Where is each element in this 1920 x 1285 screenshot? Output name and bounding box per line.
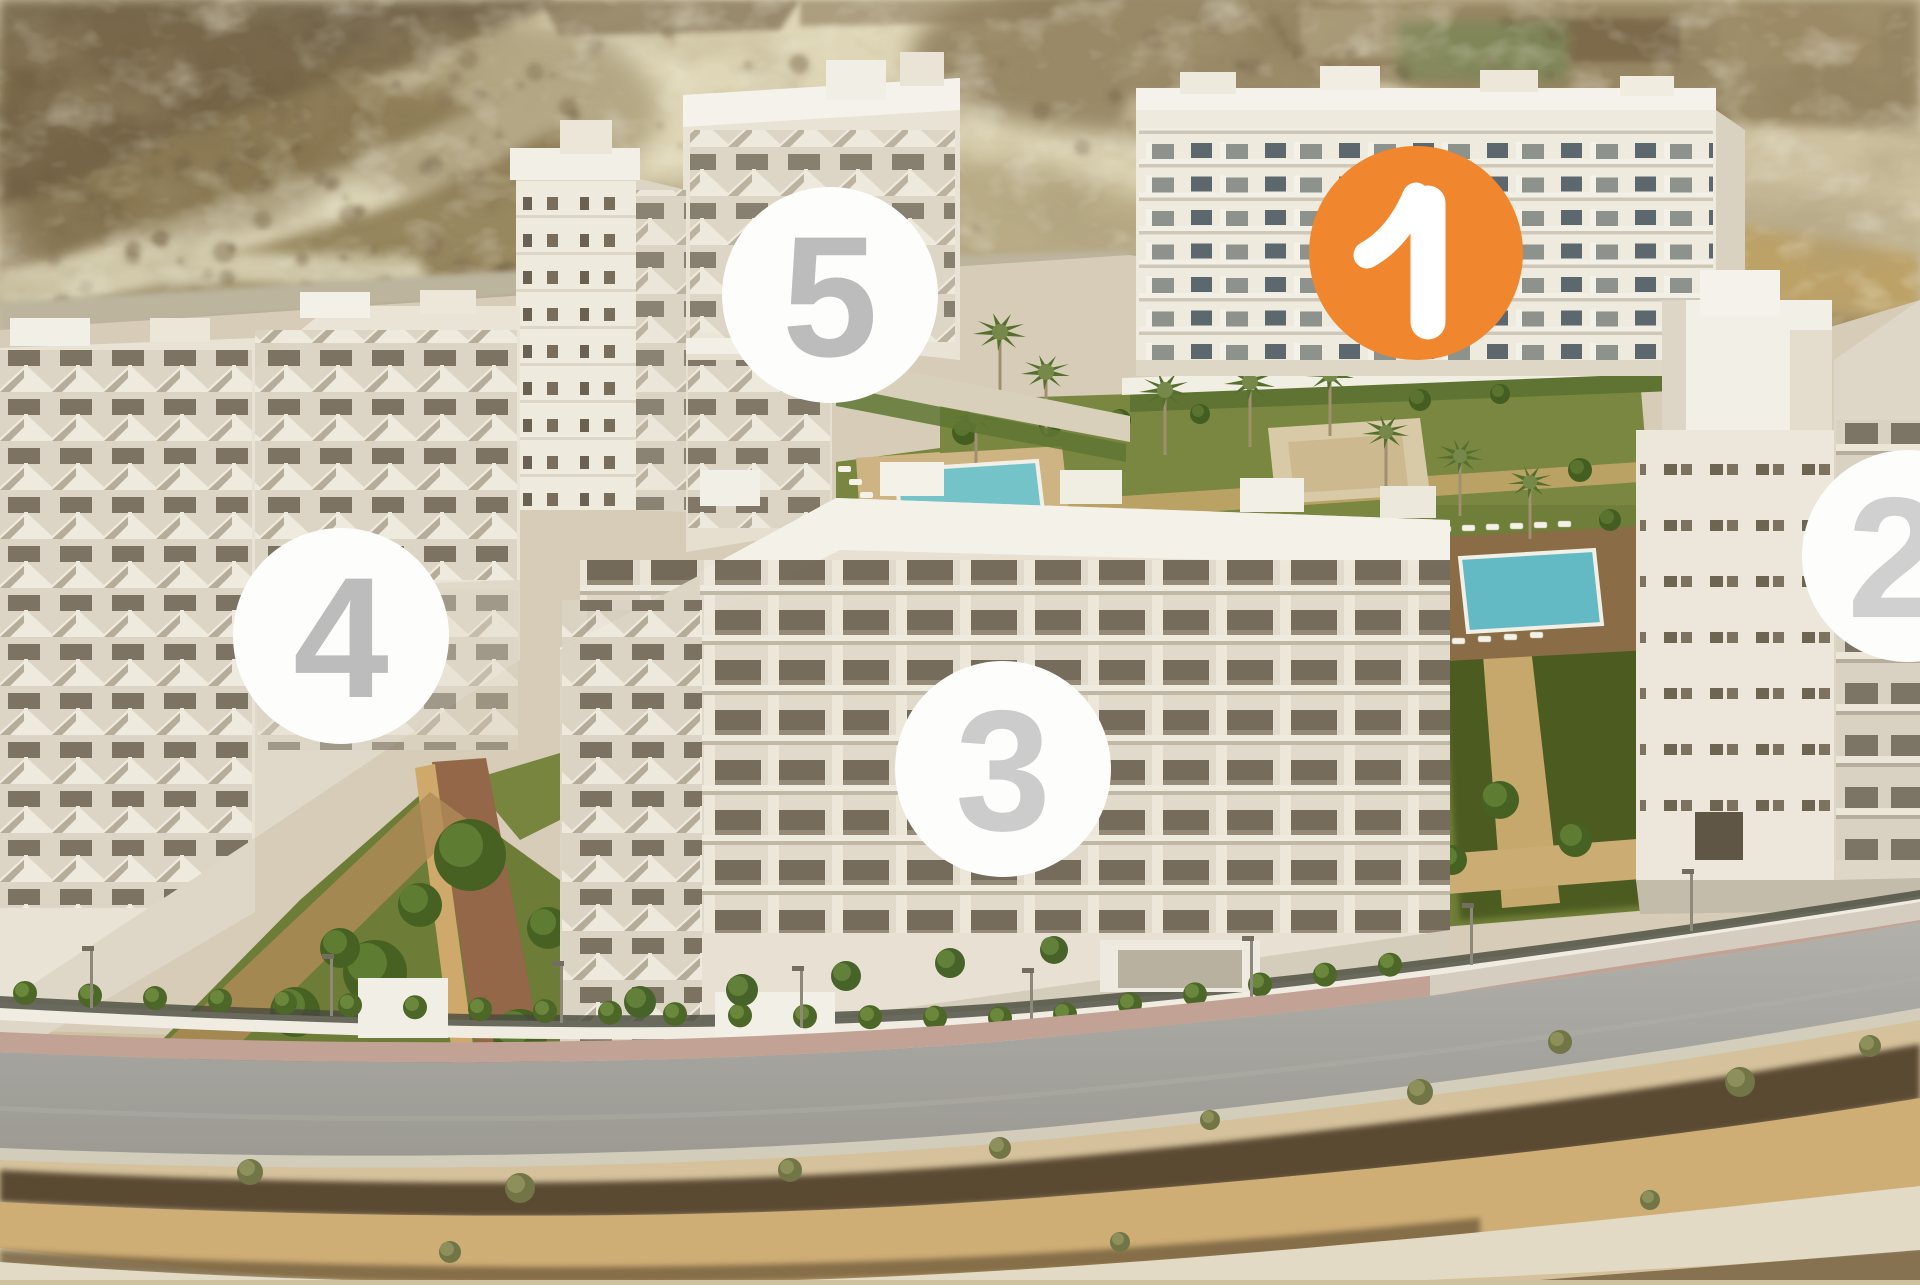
svg-text:3: 3 — [955, 675, 1051, 867]
svg-text:5: 5 — [782, 201, 878, 393]
svg-text:4: 4 — [293, 542, 389, 734]
svg-text:2: 2 — [1847, 462, 1920, 654]
